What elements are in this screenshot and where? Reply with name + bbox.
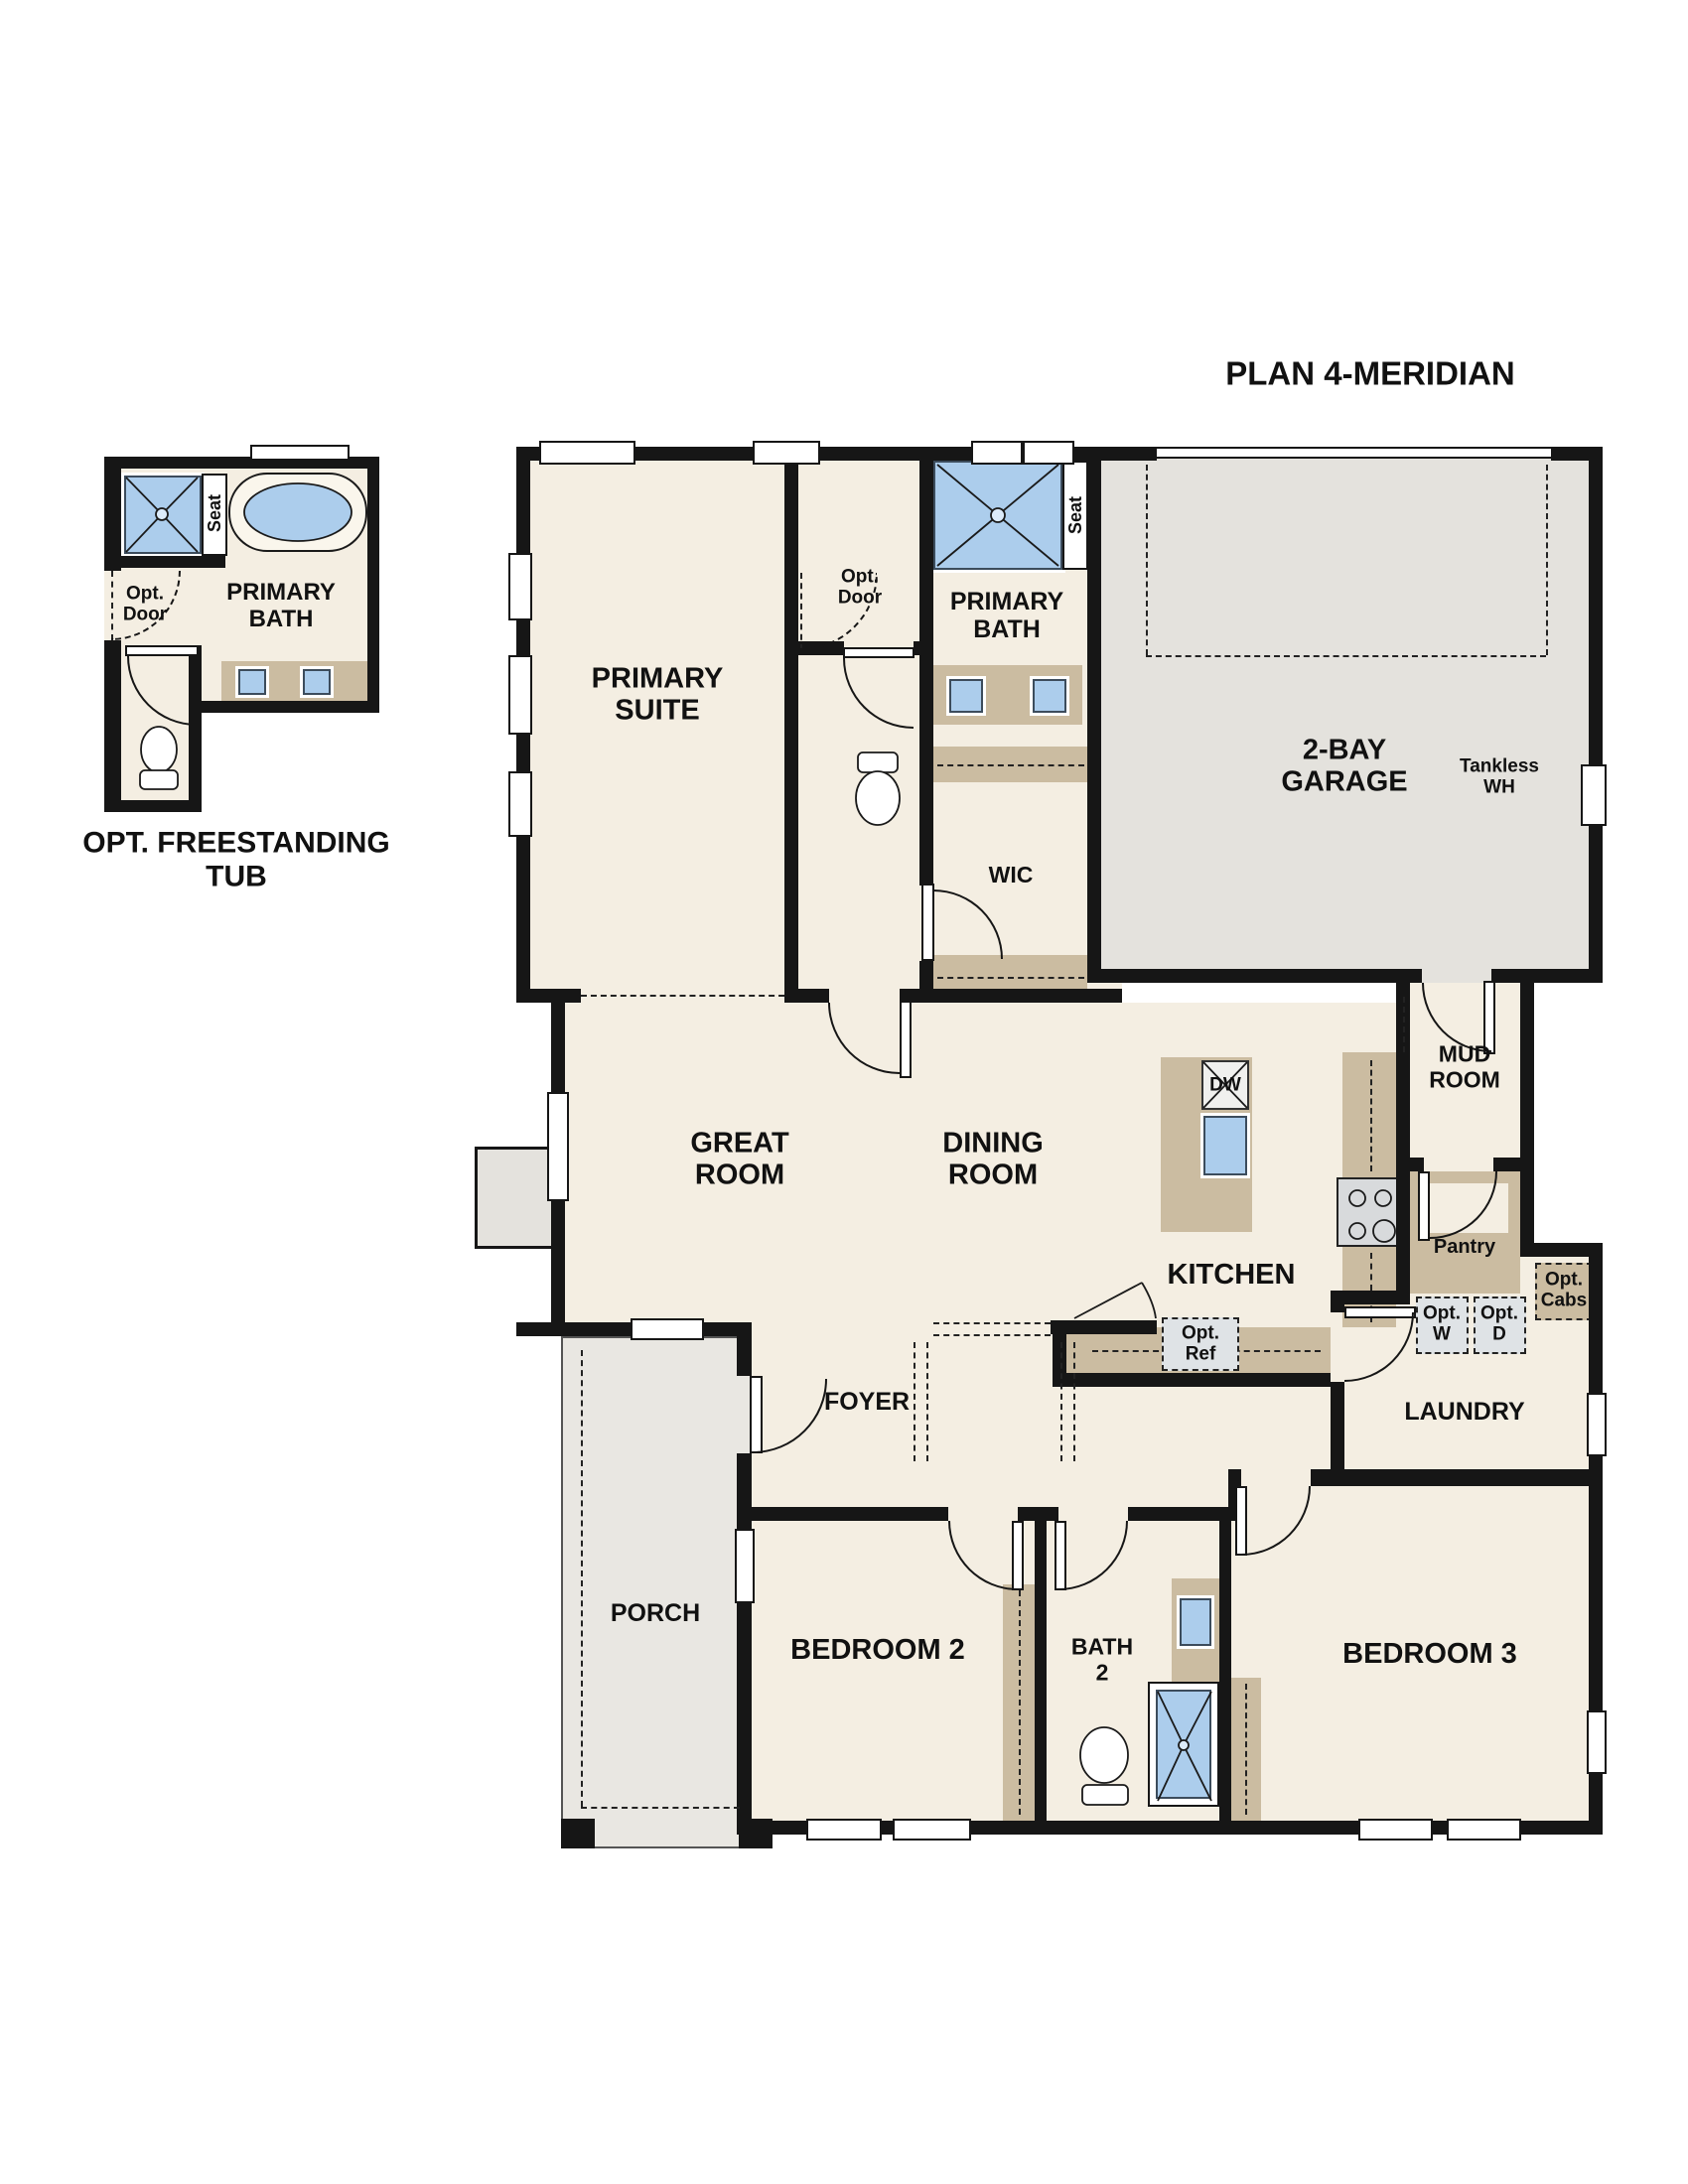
closet-rod: [1019, 1590, 1021, 1815]
window: [1023, 441, 1074, 465]
door-leaf: [900, 1001, 912, 1078]
wall: [367, 457, 379, 713]
stove-icon: [1336, 1177, 1400, 1247]
plan-title: PLAN 4-MERIDIAN: [1225, 356, 1515, 393]
wall: [1035, 1521, 1047, 1835]
inset-shower-icon: [124, 476, 202, 554]
window: [539, 441, 635, 465]
wall: [737, 1322, 752, 1376]
wall: [919, 574, 933, 886]
wall: [104, 457, 121, 571]
cased-opening: [933, 1322, 1051, 1324]
wall: [1051, 1320, 1157, 1334]
dash: [1403, 997, 1405, 1052]
cased-opening: [1060, 1342, 1062, 1461]
room-label-laundry: LAUNDRY: [1404, 1398, 1524, 1426]
opt-door-label: Opt. Door: [838, 567, 882, 610]
wall: [1018, 1507, 1058, 1521]
window: [508, 771, 532, 837]
cased-opening: [926, 1342, 928, 1461]
floor-garage: [1087, 447, 1603, 983]
laundry-counter: [1410, 1268, 1520, 1294]
room-label-wic: WIC: [989, 863, 1034, 888]
wall: [752, 1507, 948, 1521]
wall: [1589, 1469, 1603, 1835]
window: [508, 655, 532, 735]
room-label-bedroom-3: BEDROOM 3: [1342, 1638, 1517, 1670]
closet-rod: [937, 977, 1084, 979]
room-label-primary-suite: PRIMARY SUITE: [592, 663, 724, 728]
garage-dash: [1146, 465, 1148, 655]
pantry-door-leaf: [1418, 1171, 1430, 1241]
porch-dash: [581, 1350, 583, 1807]
wall: [784, 447, 798, 1003]
cased-opening: [1073, 1342, 1075, 1461]
room-label-foyer: FOYER: [824, 1388, 910, 1416]
door-leaf: [843, 647, 914, 658]
window: [806, 1819, 882, 1841]
inset-opt-door-label: Opt. Door: [123, 584, 167, 626]
wall: [933, 989, 1122, 1003]
closet-rod: [1245, 1684, 1247, 1815]
wall: [202, 701, 379, 713]
cased-opening: [933, 1334, 1051, 1336]
sink-icon: [949, 679, 983, 713]
wall: [516, 989, 581, 1003]
room-label-kitchen: KITCHEN: [1168, 1259, 1296, 1291]
room-label-bath-2: BATH 2: [1071, 1634, 1133, 1686]
sink-icon: [1180, 1598, 1211, 1646]
garage-door-opening: [1157, 447, 1551, 459]
opt-ref-label: Opt. Ref: [1182, 1323, 1219, 1366]
wall: [1493, 1158, 1520, 1171]
room-label-dining-room: DINING ROOM: [942, 1128, 1044, 1192]
room-label-bedroom-2: BEDROOM 2: [790, 1634, 965, 1666]
porch-dash: [581, 1807, 740, 1809]
wall: [1053, 1373, 1331, 1387]
window: [735, 1529, 755, 1603]
cased-opening: [914, 1342, 915, 1461]
floor-porch: [561, 1336, 752, 1848]
upper-cabinet-dash: [1370, 1060, 1372, 1171]
dw-label: DW: [1209, 1074, 1241, 1095]
opt-cabs-label: Opt. Cabs: [1541, 1270, 1587, 1312]
wall: [1520, 969, 1534, 1257]
wall: [104, 800, 202, 812]
kitchen-sink-icon: [1203, 1116, 1247, 1175]
floor-plan-page: PLAN 4-MERIDIAN PRIMARY BATH Seat Opt. D…: [0, 0, 1688, 2184]
window: [1358, 1819, 1433, 1841]
inset-seat-label: Seat: [205, 494, 224, 532]
wall: [1396, 1158, 1424, 1171]
inset-sink-icon: [303, 669, 331, 695]
room-label-mud-room: MUD ROOM: [1429, 1041, 1500, 1093]
window: [1587, 1710, 1607, 1774]
window: [250, 445, 350, 461]
wall: [1311, 1469, 1603, 1486]
room-label-garage: 2-BAY GARAGE: [1281, 735, 1407, 799]
sink-icon: [1033, 679, 1066, 713]
inset-caption: OPT. FREESTANDING TUB: [82, 826, 389, 892]
room-label-porch: PORCH: [611, 1599, 700, 1627]
tankless-water-heater: [1581, 764, 1607, 826]
wall: [121, 556, 225, 568]
wall: [1128, 1507, 1231, 1521]
wall: [1331, 1291, 1344, 1312]
door-leaf: [125, 645, 199, 656]
wall: [919, 961, 933, 1003]
closet-rod: [937, 764, 1084, 766]
porch-post: [561, 1819, 595, 1848]
garage-dash: [1146, 655, 1546, 657]
porch-post: [739, 1819, 773, 1848]
wall: [1087, 969, 1422, 983]
window: [631, 1318, 704, 1340]
cased-opening: [581, 995, 794, 997]
wall: [737, 1453, 752, 1521]
opt-w-label: Opt. W: [1423, 1303, 1461, 1346]
wall: [1589, 447, 1603, 983]
garage-dash: [1546, 465, 1548, 655]
room-label-great-room: GREAT ROOM: [690, 1128, 788, 1192]
wall: [1219, 1521, 1231, 1835]
window: [547, 1092, 569, 1201]
wall: [794, 989, 829, 1003]
opt-d-label: Opt. D: [1480, 1303, 1518, 1346]
room-label-primary-bath: PRIMARY BATH: [950, 588, 1063, 643]
tankless-wh-label: Tankless WH: [1460, 756, 1539, 799]
wall: [919, 447, 933, 574]
tub-shower-icon: [1156, 1690, 1211, 1799]
seat-label: Seat: [1065, 496, 1085, 534]
window: [753, 441, 820, 465]
inset-sink-icon: [238, 669, 266, 695]
window: [1587, 1393, 1607, 1456]
wall: [1087, 447, 1101, 983]
inset-room-label-primary-bath: PRIMARY BATH: [226, 580, 336, 633]
window: [893, 1819, 971, 1841]
wall: [1491, 969, 1603, 983]
window: [1447, 1819, 1521, 1841]
window: [508, 553, 532, 620]
shower-icon: [933, 461, 1062, 570]
room-label-pantry: Pantry: [1434, 1236, 1495, 1258]
wall: [104, 640, 121, 812]
window: [971, 441, 1023, 465]
